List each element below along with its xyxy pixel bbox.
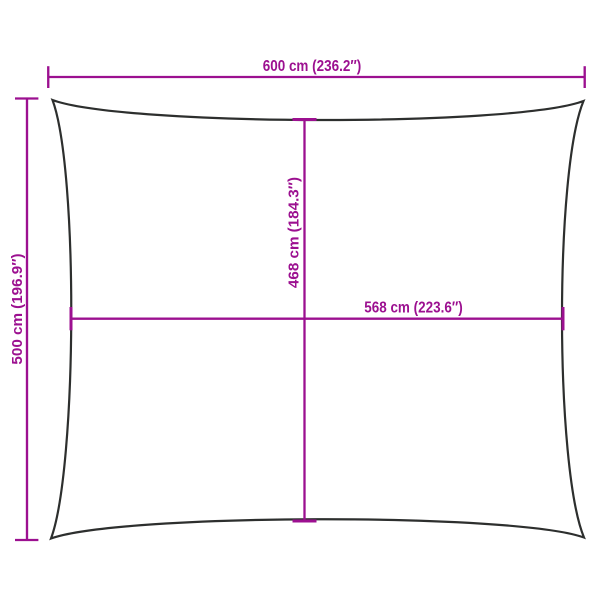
svg-text:468 cm (184.3″): 468 cm (184.3″) bbox=[286, 177, 303, 288]
svg-text:600 cm (236.2″): 600 cm (236.2″) bbox=[263, 58, 362, 75]
svg-text:568 cm (223.6″): 568 cm (223.6″) bbox=[364, 300, 463, 317]
svg-text:500 cm (196.9″): 500 cm (196.9″) bbox=[9, 253, 26, 364]
